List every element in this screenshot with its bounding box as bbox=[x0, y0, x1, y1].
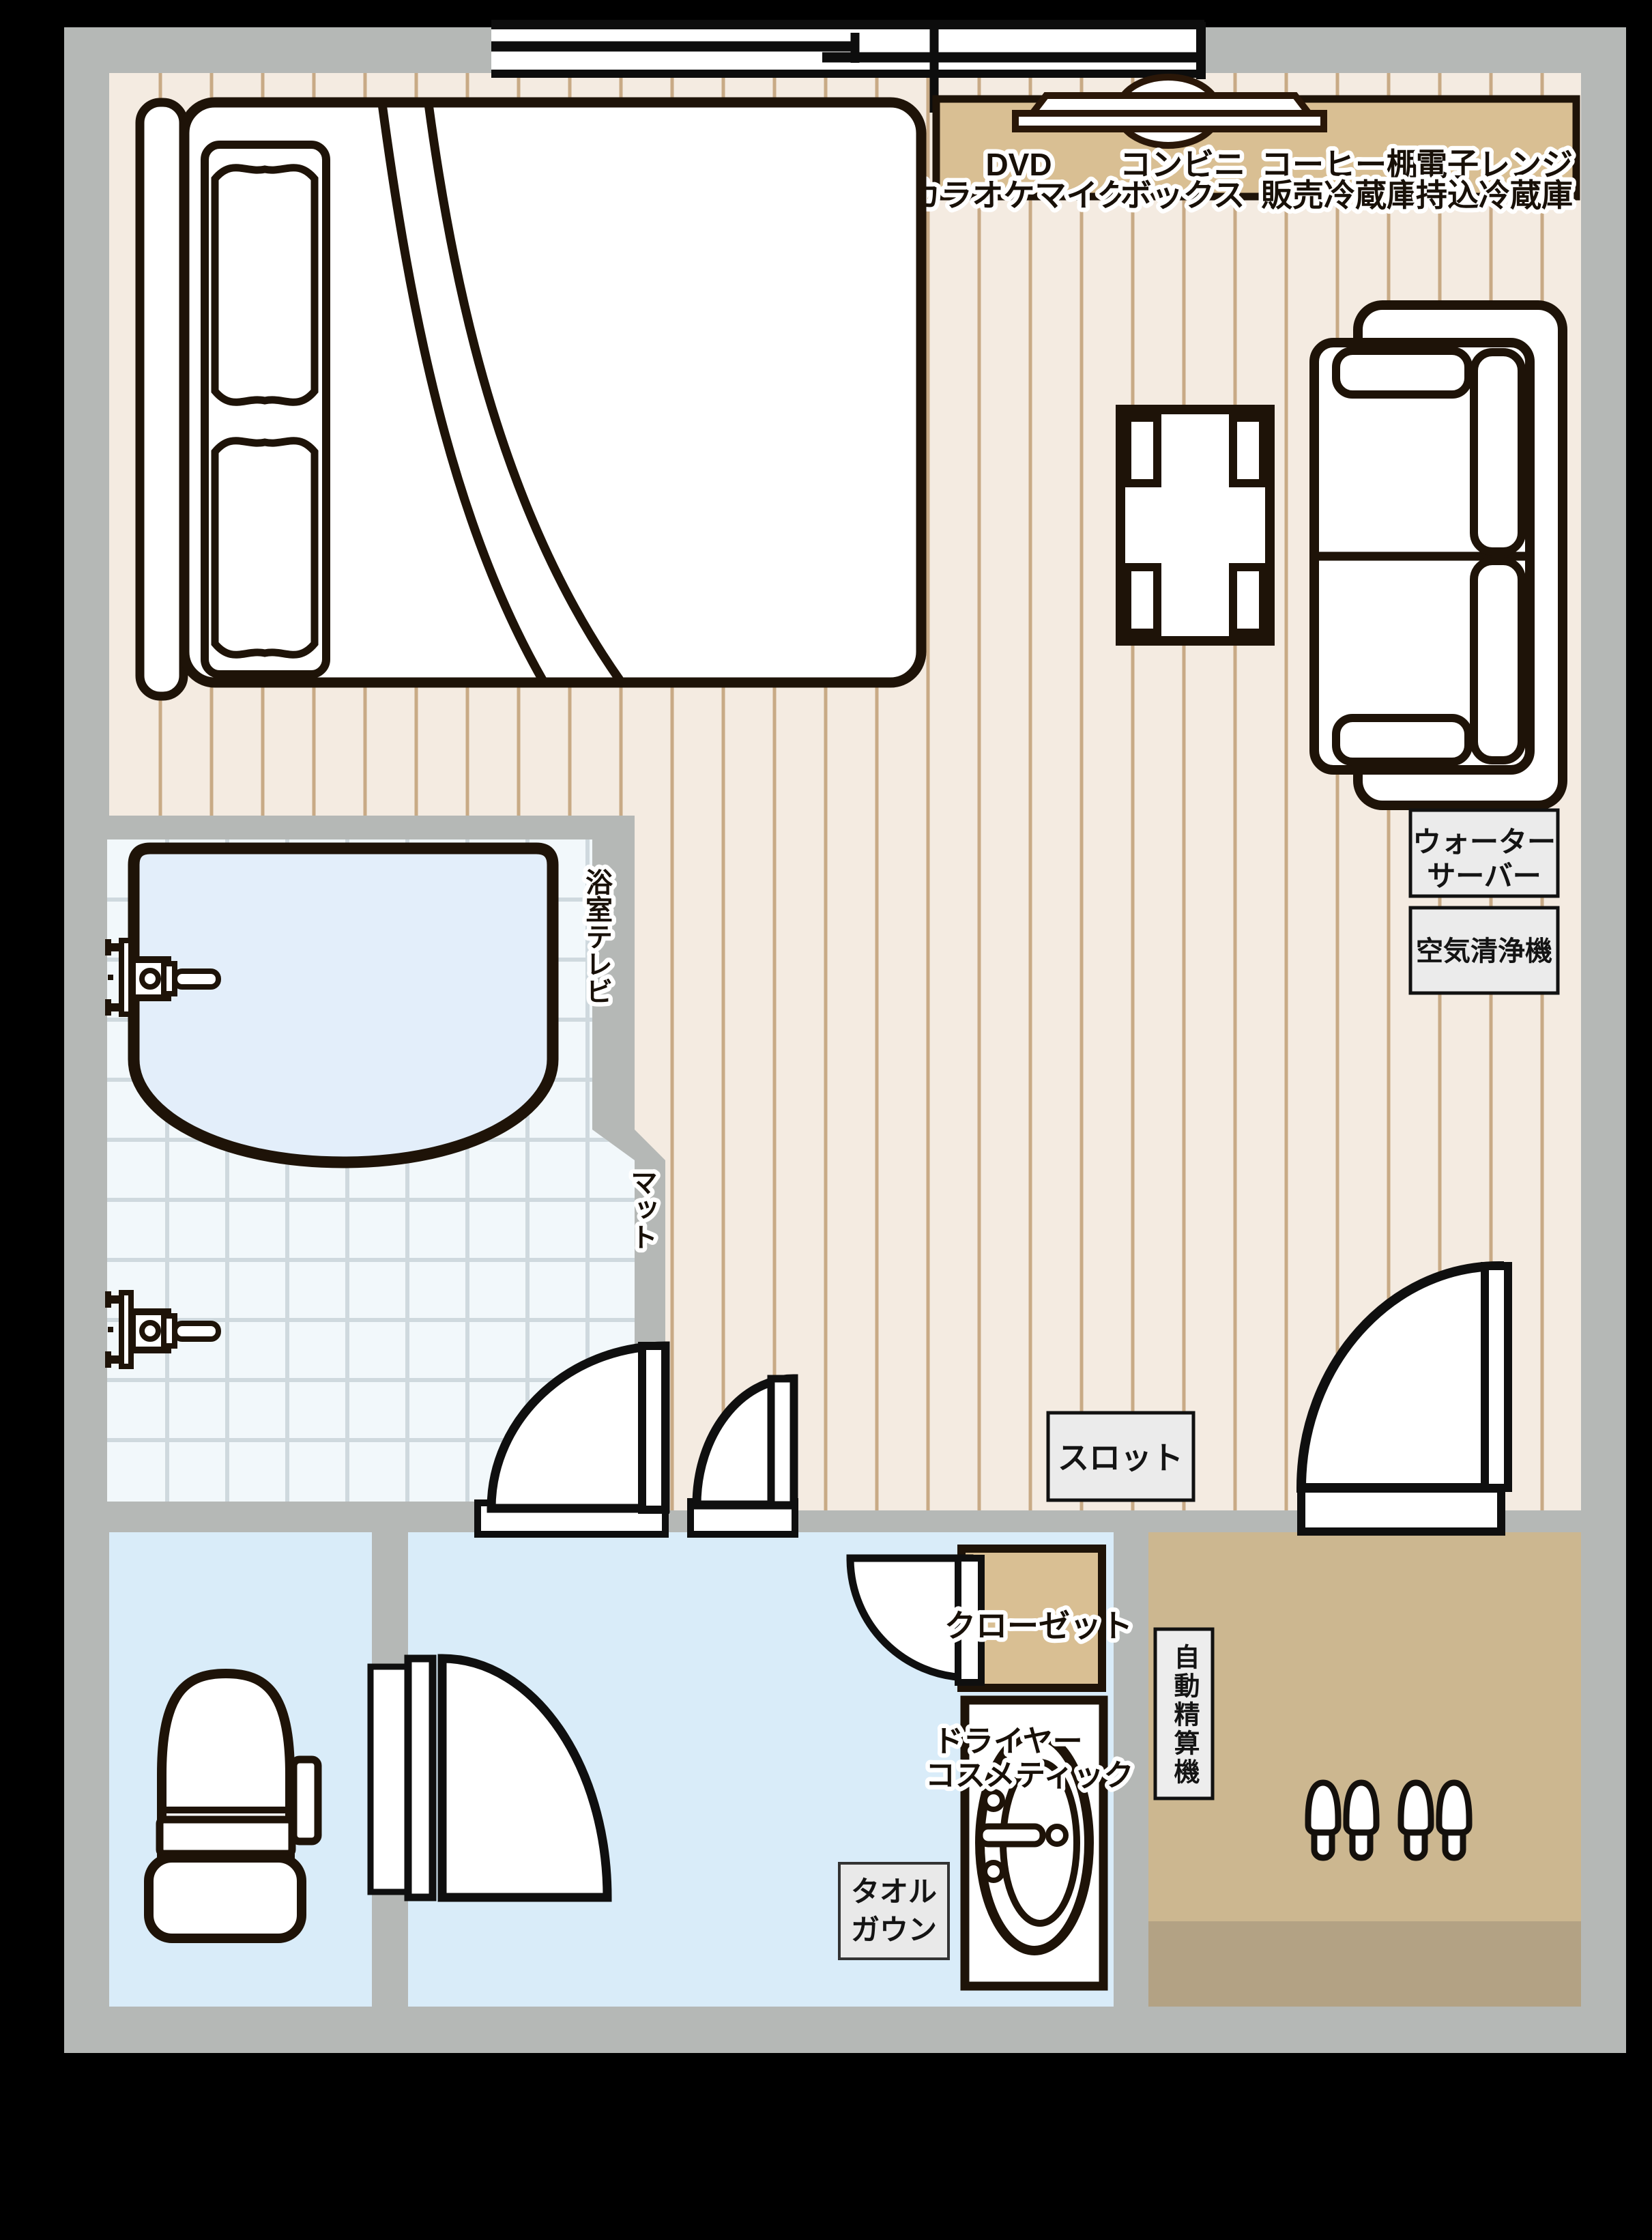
sink-faucet bbox=[980, 1826, 1043, 1844]
bathtub bbox=[134, 848, 553, 1162]
sofa-arm-cushion bbox=[1336, 351, 1468, 394]
pillow-icon bbox=[215, 441, 315, 655]
sofa-back-cushion bbox=[1474, 561, 1522, 760]
label-closet: クローゼット bbox=[944, 1608, 1133, 1643]
label-air-purifier: 空気清浄機 bbox=[1416, 936, 1552, 966]
label-water-server-2: サーバー bbox=[1427, 860, 1541, 892]
label-mat: マット bbox=[626, 1168, 656, 1250]
sofa-arm-cushion bbox=[1336, 718, 1468, 762]
label-bath-tv: 浴室テレビ bbox=[581, 868, 613, 1005]
label-box: ボックス bbox=[1120, 177, 1245, 213]
auto-checkout-box: 自動精算機 bbox=[1155, 1629, 1213, 1798]
label-auto-checkout: 自動精算機 bbox=[1170, 1643, 1200, 1787]
headboard bbox=[140, 102, 184, 696]
table-leg bbox=[1233, 567, 1263, 633]
towel-gown-box: タオル ガウン bbox=[839, 1863, 948, 1959]
label-byo-fridge: 持込冷蔵庫 bbox=[1416, 177, 1573, 213]
toilet-tank bbox=[149, 1858, 302, 1938]
floor-plan-page: DVD カラオケマイク コンビニ ボックス コーヒー棚 販売冷蔵庫 電子レンジ … bbox=[0, 0, 1652, 2240]
air-purifier-box: 空気清浄機 bbox=[1410, 908, 1558, 993]
table-leg bbox=[1127, 567, 1157, 633]
label-slot: スロット bbox=[1058, 1440, 1183, 1476]
toilet-handle bbox=[293, 1760, 318, 1841]
table-leg bbox=[1233, 418, 1263, 483]
label-towel: タオル bbox=[851, 1876, 937, 1908]
sofa bbox=[1314, 305, 1563, 805]
label-karaoke-mic: カラオケマイク bbox=[909, 177, 1128, 213]
pillow-icon bbox=[215, 168, 315, 402]
label-gown: ガウン bbox=[851, 1914, 937, 1946]
table-leg bbox=[1127, 418, 1157, 483]
toilet-seat-band bbox=[160, 1820, 292, 1854]
slot-box: スロット bbox=[1048, 1413, 1193, 1500]
counter-labels: DVD カラオケマイク コンビニ ボックス コーヒー棚 販売冷蔵庫 電子レンジ … bbox=[909, 147, 1573, 213]
label-dryer: ドライヤー bbox=[933, 1725, 1083, 1758]
label-water-server-1: ウォーター bbox=[1412, 826, 1556, 858]
table bbox=[1120, 410, 1270, 641]
water-server-box: ウォーター サーバー bbox=[1410, 810, 1558, 896]
label-sales-fridge: 販売冷蔵庫 bbox=[1261, 177, 1418, 213]
label-cosmetics: コスメティック bbox=[925, 1759, 1133, 1792]
bed bbox=[140, 102, 921, 696]
sofa-back-cushion bbox=[1474, 352, 1522, 551]
floor-plan-svg: DVD カラオケマイク コンビニ ボックス コーヒー棚 販売冷蔵庫 電子レンジ … bbox=[0, 0, 1652, 2240]
entrance-step bbox=[1148, 1921, 1581, 2007]
